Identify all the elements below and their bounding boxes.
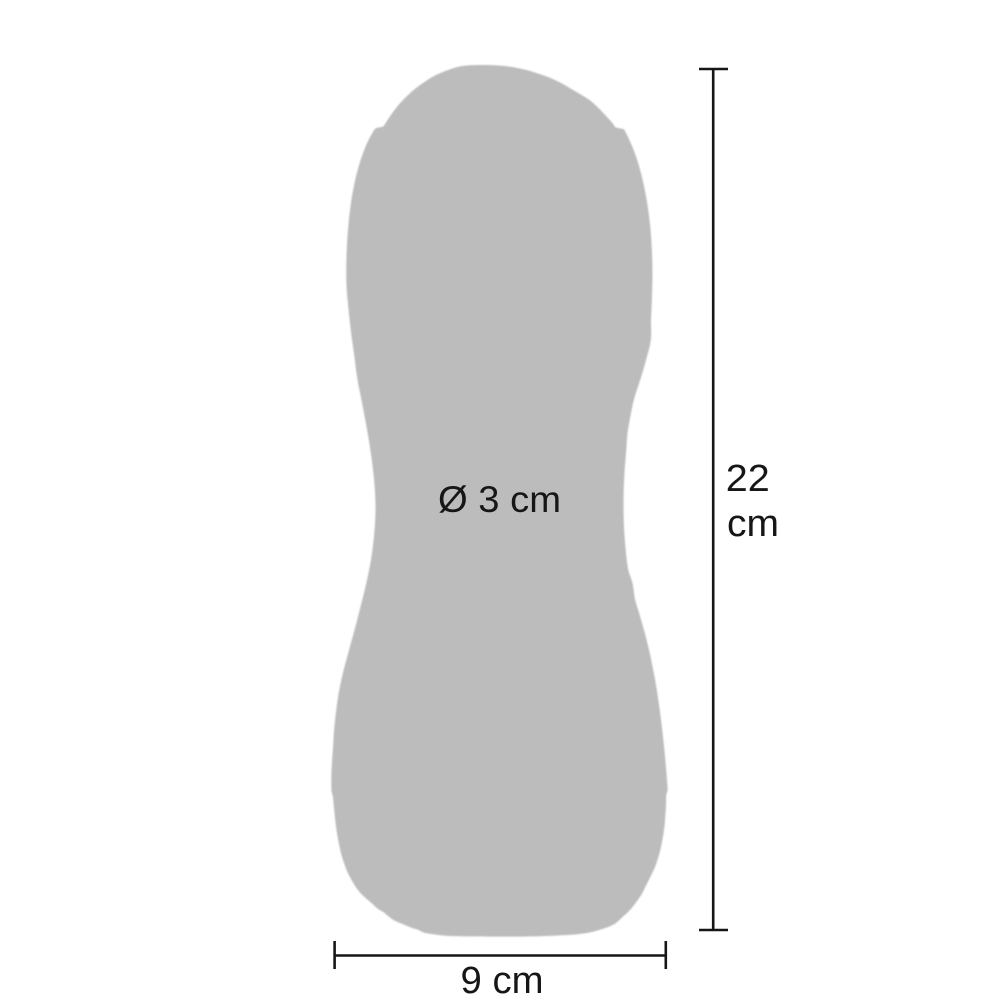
svg-text:22: 22	[726, 458, 770, 500]
svg-text:9 cm: 9 cm	[461, 960, 544, 1000]
svg-text:cm: cm	[727, 503, 779, 545]
svg-text:Ø 3 cm: Ø 3 cm	[438, 479, 561, 520]
